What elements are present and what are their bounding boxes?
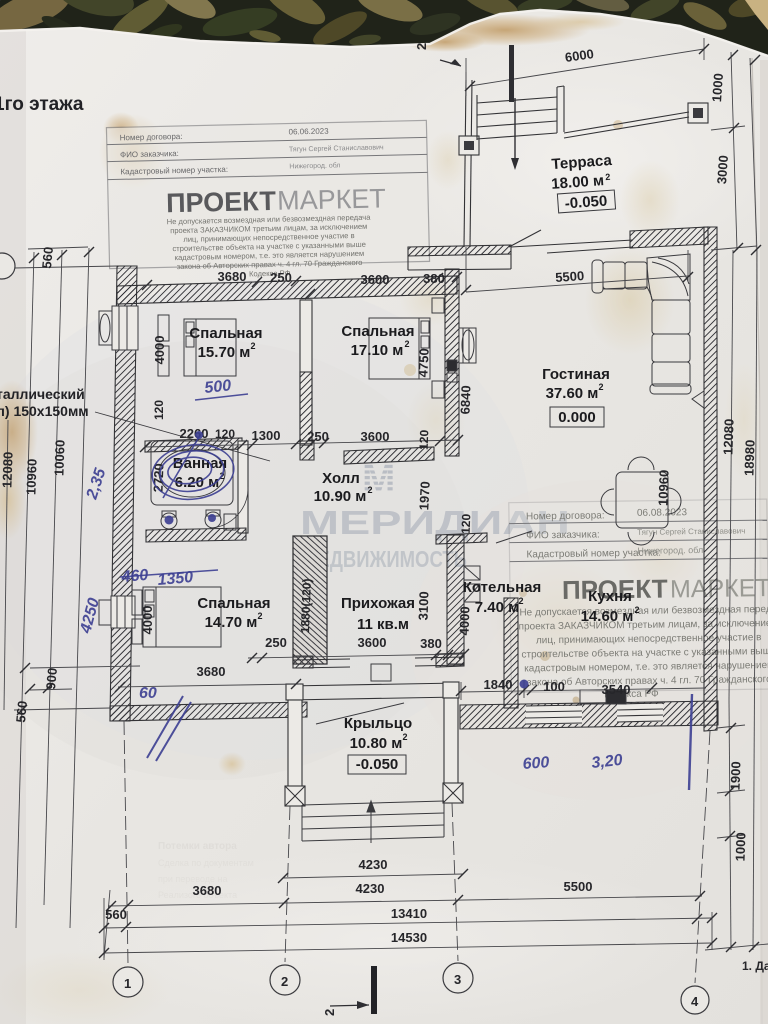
svg-text:НЕДВИЖИМОСТЬ: НЕДВИЖИМОСТЬ	[304, 546, 467, 572]
svg-text:3680: 3680	[218, 269, 247, 284]
svg-text:1000: 1000	[733, 832, 749, 861]
svg-text:Холл: Холл	[322, 470, 360, 487]
svg-text:15.70 м: 15.70 м	[198, 344, 251, 361]
svg-text:3600: 3600	[361, 272, 390, 287]
svg-text:-0.050: -0.050	[356, 756, 399, 773]
svg-text:10960: 10960	[23, 459, 39, 496]
svg-text:4230: 4230	[359, 857, 388, 872]
svg-text:2: 2	[402, 732, 407, 742]
svg-text:0.000: 0.000	[558, 409, 596, 426]
svg-text:МАРКЕТ: МАРКЕТ	[277, 183, 386, 215]
svg-text:Нижегород. обл: Нижегород. обл	[289, 161, 340, 170]
svg-text:Сделка по документам: Сделка по документам	[158, 858, 254, 868]
svg-text:1900: 1900	[728, 761, 744, 790]
svg-text:500: 500	[204, 377, 232, 397]
svg-text:2: 2	[518, 596, 523, 606]
svg-text:Крыльцо: Крыльцо	[344, 715, 412, 732]
svg-text:600: 600	[522, 754, 550, 773]
svg-text:3600: 3600	[358, 635, 387, 650]
svg-text:13410: 13410	[391, 906, 427, 921]
svg-text:4000: 4000	[457, 606, 473, 635]
svg-text:Спальная: Спальная	[197, 595, 270, 612]
svg-text:380: 380	[420, 636, 442, 651]
svg-text:5500: 5500	[564, 879, 593, 894]
svg-text:60: 60	[139, 685, 157, 702]
svg-text:14530: 14530	[391, 930, 427, 945]
svg-text:560: 560	[39, 246, 56, 269]
svg-text:4230: 4230	[356, 881, 385, 896]
svg-text:10.90 м: 10.90 м	[314, 488, 367, 505]
svg-text:120: 120	[215, 427, 235, 441]
svg-text:380: 380	[423, 271, 445, 286]
svg-text:2: 2	[257, 611, 262, 621]
svg-text:10960: 10960	[655, 470, 671, 507]
svg-text:1го этажа: 1го этажа	[0, 94, 84, 115]
svg-text:2260: 2260	[180, 426, 209, 441]
svg-text:14.60 м: 14.60 м	[581, 608, 634, 625]
svg-text:-0.050: -0.050	[564, 193, 608, 213]
svg-text:1350: 1350	[157, 569, 194, 589]
svg-text:1880(120): 1880(120)	[298, 578, 314, 633]
svg-text:460: 460	[120, 567, 149, 586]
svg-text:ФИО заказчика:: ФИО заказчика:	[120, 149, 179, 159]
svg-text:3540: 3540	[602, 682, 631, 697]
svg-text:1: 1	[124, 976, 131, 991]
svg-text:л) 150х150мм: л) 150х150мм	[0, 403, 89, 419]
svg-text:2: 2	[281, 974, 288, 989]
svg-text:120: 120	[152, 400, 166, 420]
svg-text:14.70 м: 14.70 м	[205, 614, 258, 631]
svg-text:560: 560	[13, 700, 30, 723]
svg-text:3: 3	[454, 972, 461, 987]
svg-text:18980: 18980	[741, 440, 757, 477]
svg-text:120: 120	[459, 513, 474, 534]
svg-text:ФИО заказчика:: ФИО заказчика:	[526, 529, 600, 541]
svg-text:Котельная: Котельная	[463, 579, 542, 596]
svg-text:2: 2	[322, 1009, 337, 1016]
svg-text:1840: 1840	[484, 677, 513, 692]
svg-text:100: 100	[543, 679, 565, 694]
svg-text:250: 250	[270, 270, 292, 285]
svg-text:2: 2	[634, 605, 639, 615]
svg-text:2: 2	[367, 485, 372, 495]
svg-text:Номер договора:: Номер договора:	[526, 510, 605, 522]
svg-text:12080: 12080	[720, 419, 736, 456]
svg-text:2: 2	[605, 172, 611, 182]
svg-text:2: 2	[414, 43, 429, 50]
svg-text:Гостиная: Гостиная	[542, 366, 610, 383]
svg-text:2: 2	[598, 382, 603, 392]
svg-text:1970: 1970	[416, 481, 432, 511]
svg-text:17.10 м: 17.10 м	[351, 342, 404, 359]
svg-text:таллический: таллический	[0, 386, 85, 402]
svg-text:1. Да: 1. Да	[742, 959, 768, 973]
svg-text:ПРОЕКТ: ПРОЕКТ	[166, 186, 277, 218]
svg-text:Номер договора:: Номер договора:	[120, 132, 183, 142]
svg-text:06.08.2023: 06.08.2023	[637, 507, 688, 519]
svg-text:5500: 5500	[555, 268, 585, 285]
svg-text:1000: 1000	[709, 73, 726, 103]
svg-text:Потемки автора: Потемки автора	[158, 841, 237, 852]
svg-text:Спальная: Спальная	[341, 323, 414, 340]
svg-text:Нижегород. обл: Нижегород. обл	[637, 545, 703, 556]
svg-text:560: 560	[105, 907, 127, 922]
svg-text:3600: 3600	[361, 429, 390, 444]
svg-text:10060: 10060	[51, 440, 67, 477]
svg-text:120: 120	[417, 429, 432, 450]
svg-text:МАРКЕТ: МАРКЕТ	[670, 574, 768, 603]
svg-text:6840: 6840	[458, 385, 474, 414]
svg-text:250: 250	[307, 429, 329, 444]
svg-text:4000: 4000	[152, 336, 167, 365]
svg-text:Прихожая: Прихожая	[341, 595, 415, 612]
svg-text:11 кв.м: 11 кв.м	[357, 616, 409, 633]
svg-text:900: 900	[43, 667, 60, 690]
svg-text:4000: 4000	[140, 606, 155, 635]
svg-text:2: 2	[404, 339, 409, 349]
svg-text:7.40 м: 7.40 м	[475, 599, 519, 616]
svg-text:4750: 4750	[415, 348, 431, 378]
svg-text:Спальная: Спальная	[189, 325, 262, 342]
svg-text:Кухня: Кухня	[588, 588, 632, 605]
svg-text:06.06.2023: 06.06.2023	[288, 127, 329, 137]
svg-text:3100: 3100	[416, 591, 432, 620]
svg-text:10.80 м: 10.80 м	[350, 735, 403, 752]
svg-text:37.60 м: 37.60 м	[546, 385, 599, 402]
svg-text:250: 250	[265, 635, 287, 650]
svg-text:3680: 3680	[193, 883, 222, 898]
svg-text:4: 4	[691, 994, 699, 1009]
svg-text:3,20: 3,20	[591, 752, 624, 772]
svg-text:12080: 12080	[0, 452, 16, 489]
svg-text:3680: 3680	[197, 664, 226, 679]
svg-text:1300: 1300	[252, 428, 281, 443]
svg-text:3000: 3000	[714, 155, 731, 185]
svg-text:2: 2	[250, 341, 255, 351]
